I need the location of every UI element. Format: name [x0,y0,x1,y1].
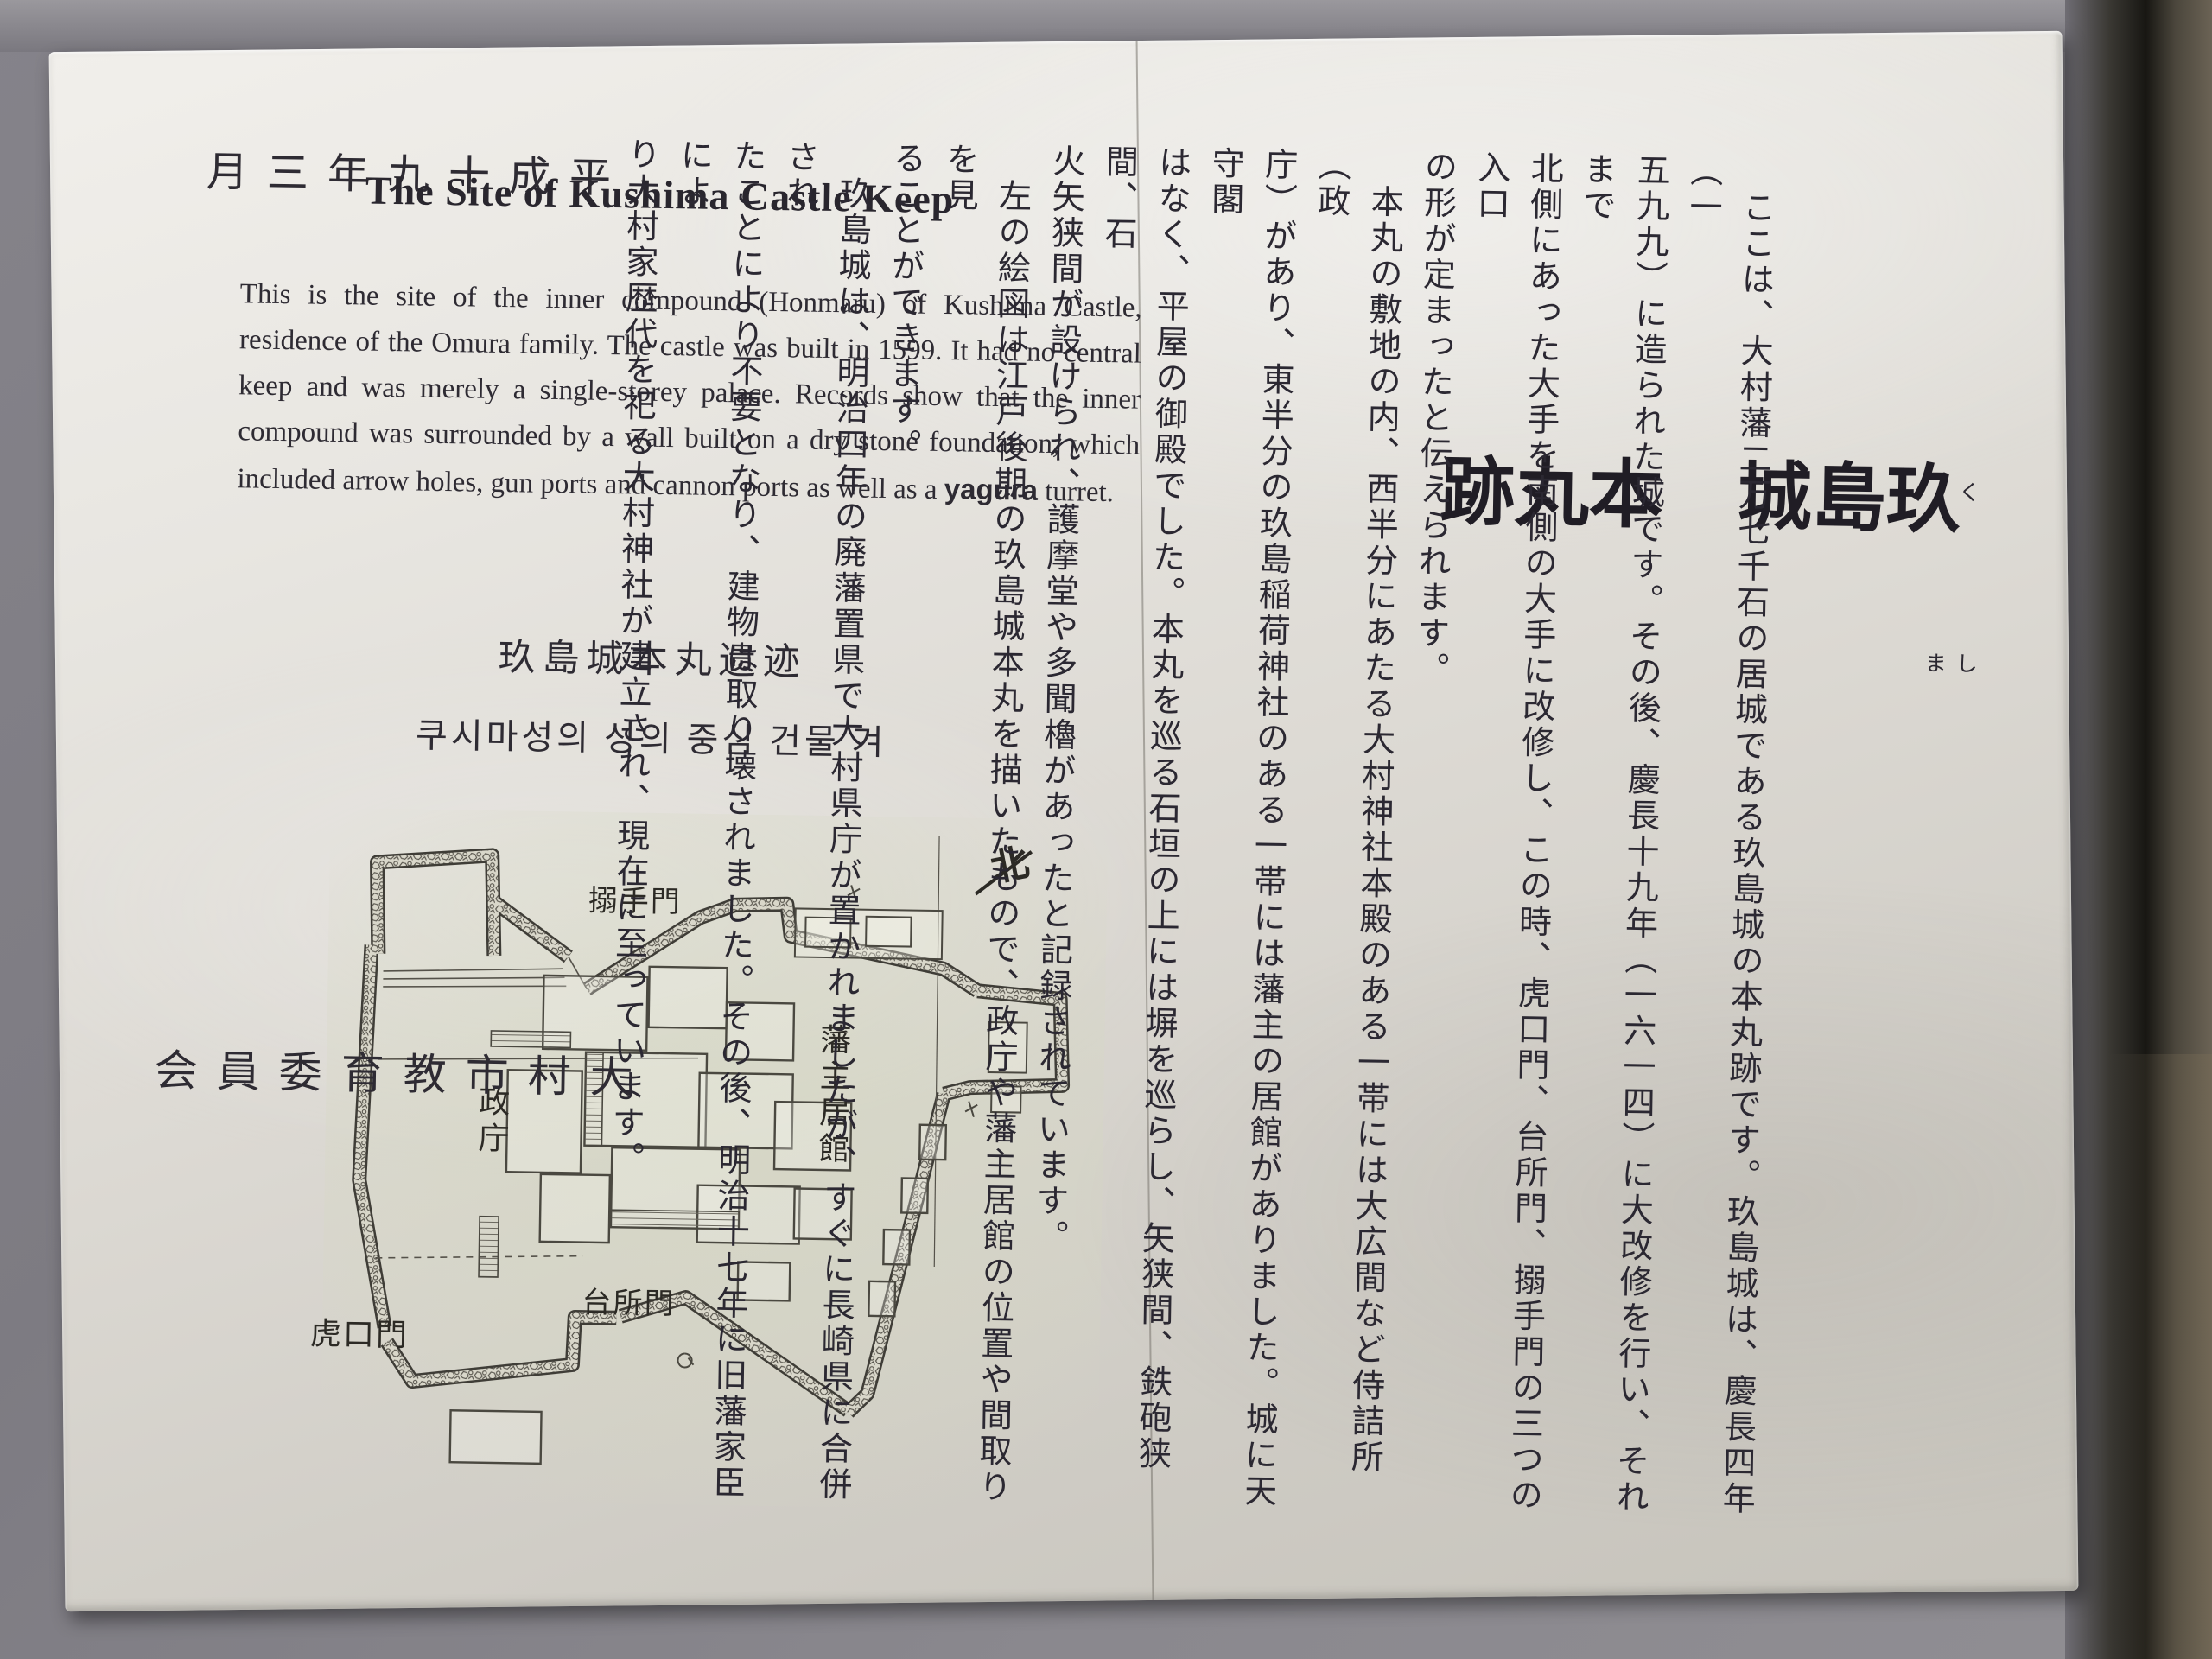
jp-column-9: 左の絵図は江戸後期の玖島城本丸を描いたもので、政庁や藩主居館の位置や間取りを見 [910,142,1038,1533]
furigana-shima: しま [1917,652,1980,677]
furigana-ku: く [1951,480,1982,506]
jp-column-7: はなく、平屋の御殿でした。本丸を巡る石垣の上には塀を巡らし、矢狭間、鉄砲狭間、石 [1070,144,1198,1535]
issuer-vertical-text: 大村市教育委員会 [141,1047,639,1112]
frame-right-reflection [2108,1054,2212,1659]
jp-column-2: 五九九）に造られた城です。その後、慶長十九年（一六一四）に大改修を行い、それまで [1548,151,1675,1542]
jp-column-11: 玖島城は、明治四年の廃藩置県で大村県庁が置かれましたが、すぐに長崎県に合併され [751,139,879,1530]
jp-column-1: ここは、大村藩二万七千石の居城である玖島城の本丸跡です。玖島城は、慶長四年（一 [1654,153,1782,1544]
map-label-koguchi-gate: 虎口門 [310,1309,410,1356]
photo-background: 平成十九年三月 The Site of Kushima Castle Keep … [0,0,2212,1659]
jp-column-5: 本丸の敷地の内、西半分にあたる大村神社本殿のある一帯には大広間など侍詰所（政 [1282,148,1410,1539]
japanese-body-text: ここは、大村藩二万七千石の居城である玖島城の本丸跡です。玖島城は、慶長四年（一 … [592,137,1783,1544]
information-plaque: 平成十九年三月 The Site of Kushima Castle Keep … [49,31,2079,1611]
jp-column-3: 北側にあった大手を南側の大手に改修し、この時、虎口門、台所門、搦手門の三つの入口 [1441,149,1569,1541]
jp-column-12: たことにより不要となり、建物は取り壊されました。その後、明治十七年に旧藩家臣によ [645,137,772,1529]
jp-column-6: 庁）があり、東半分の玖島稲荷神社のある一帯には藩主の居館がありました。城に天守閣 [1176,146,1304,1537]
